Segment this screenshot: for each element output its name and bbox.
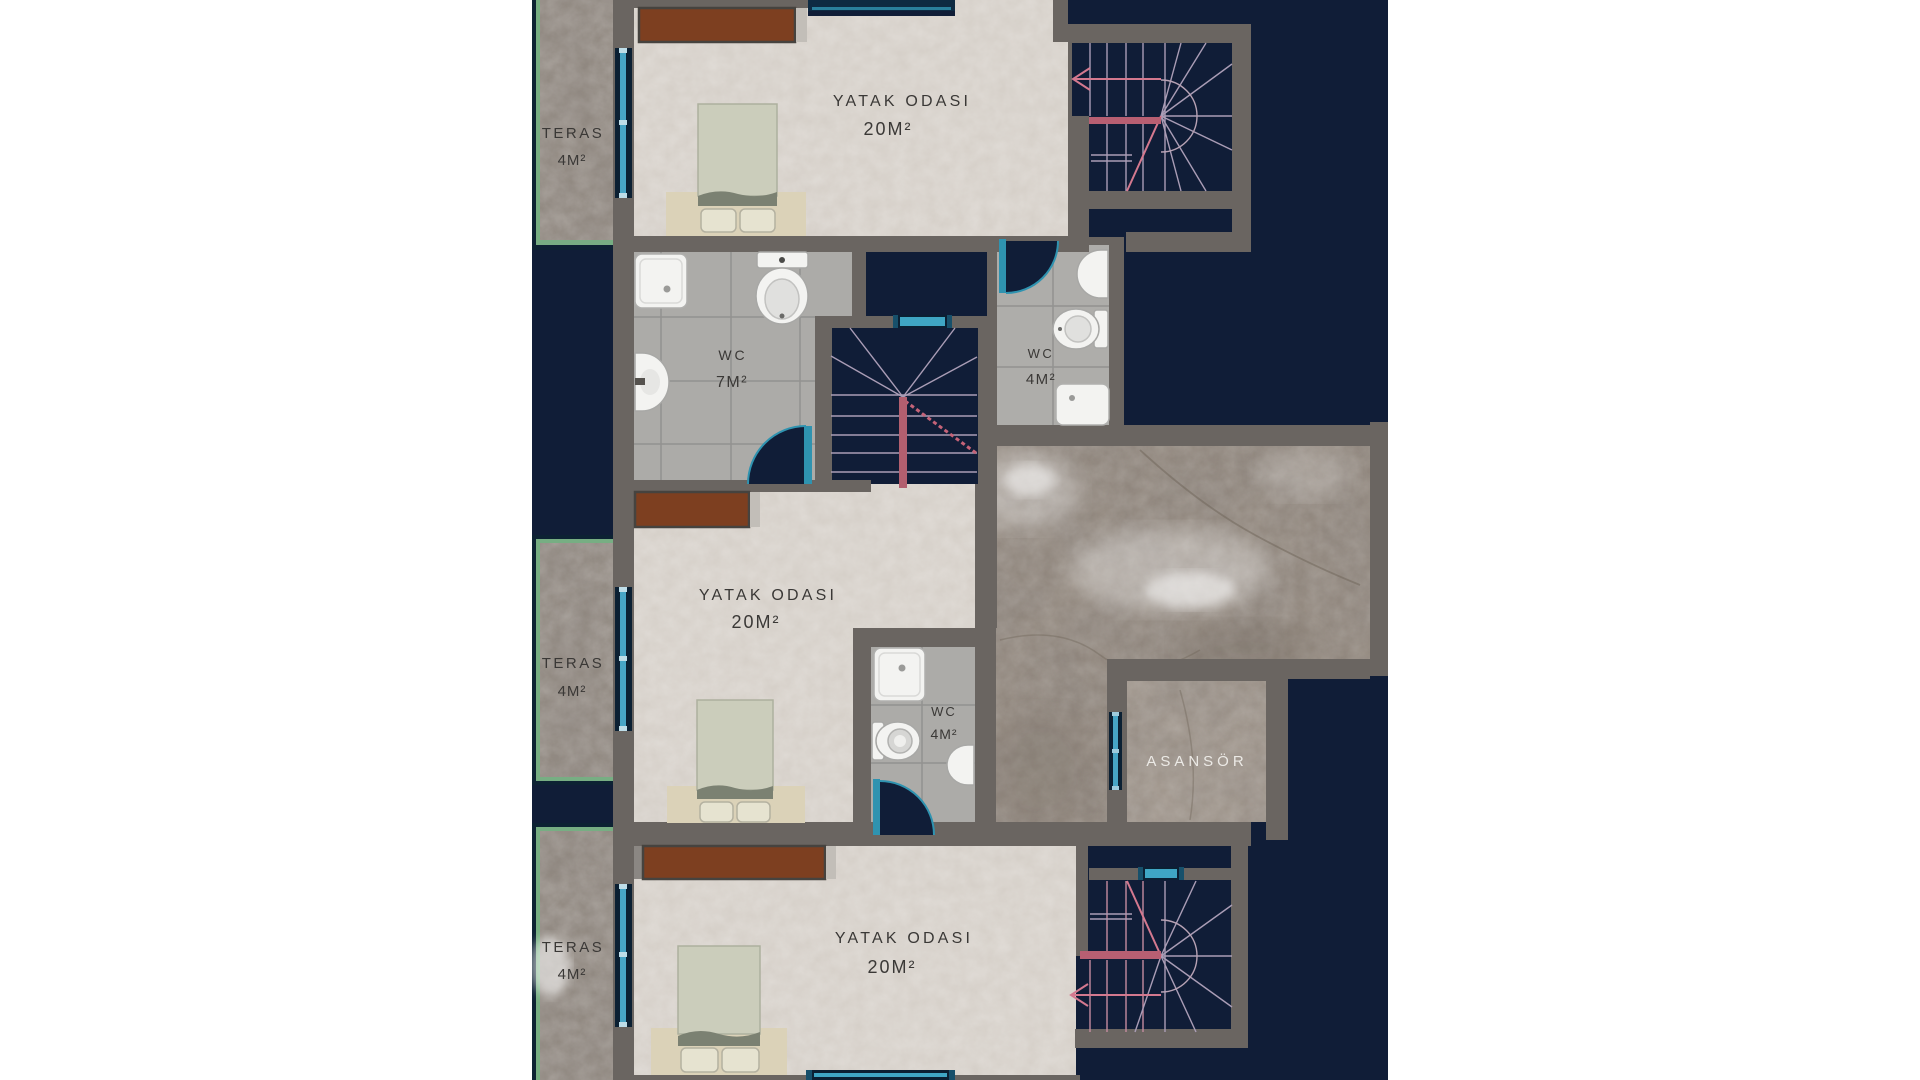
svg-text:TERAS: TERAS: [542, 939, 605, 956]
svg-text:4M²: 4M²: [558, 152, 587, 169]
svg-text:TERAS: TERAS: [542, 125, 605, 142]
svg-text:20M²: 20M²: [863, 119, 912, 139]
svg-text:4M²: 4M²: [930, 726, 957, 742]
svg-text:WC: WC: [931, 704, 957, 719]
svg-text:YATAK ODASI: YATAK ODASI: [833, 93, 971, 110]
svg-text:4M²: 4M²: [558, 966, 587, 983]
svg-text:YATAK ODASI: YATAK ODASI: [699, 587, 837, 604]
svg-text:TERAS: TERAS: [542, 655, 605, 672]
svg-text:20M²: 20M²: [867, 957, 916, 977]
svg-text:4M²: 4M²: [558, 683, 587, 700]
svg-text:WC: WC: [718, 347, 747, 363]
svg-text:WC: WC: [1028, 346, 1055, 361]
svg-text:7M²: 7M²: [716, 374, 748, 391]
svg-text:4M²: 4M²: [1026, 371, 1056, 388]
svg-text:YATAK ODASI: YATAK ODASI: [835, 930, 973, 947]
svg-text:ASANSÖR: ASANSÖR: [1146, 752, 1247, 770]
svg-text:20M²: 20M²: [731, 612, 780, 632]
